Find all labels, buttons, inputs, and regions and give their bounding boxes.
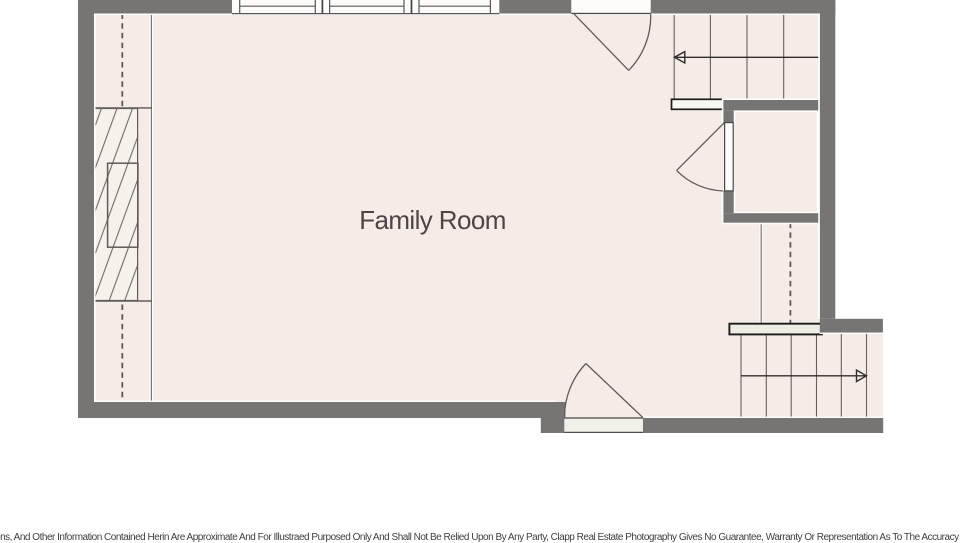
svg-text:Dimensions, And Other Informat: Dimensions, And Other Information Contai… [0, 532, 960, 543]
svg-text:Family Room: Family Room [359, 205, 506, 235]
